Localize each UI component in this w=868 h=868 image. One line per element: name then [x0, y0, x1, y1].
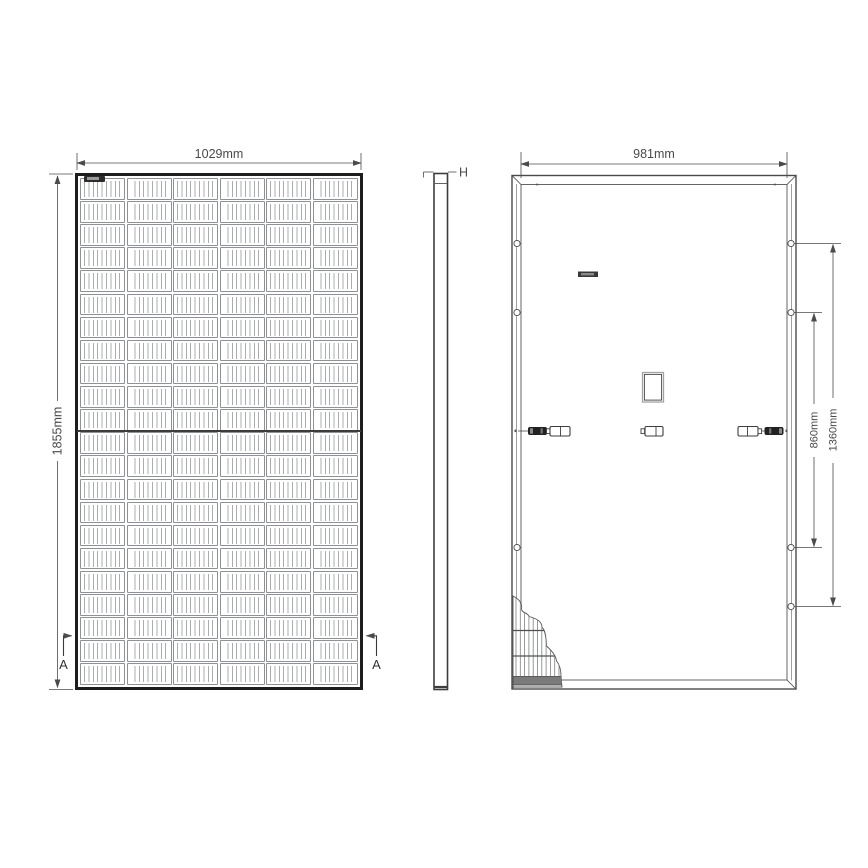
front-width-label: 1029mm — [195, 147, 244, 161]
dimension-back-width: 981mm — [521, 147, 787, 178]
mounting-hole — [514, 544, 520, 550]
mc4-socket-white — [738, 427, 758, 437]
frame-pin-hole — [536, 184, 538, 186]
connector-left — [515, 427, 571, 437]
section-marker-right: A — [367, 636, 382, 672]
mounting-hole — [788, 240, 794, 246]
dimension-front-height: 1855mm — [49, 174, 73, 690]
dimension-front-width: 1029mm — [77, 147, 361, 170]
front-height-label: 1855mm — [51, 407, 65, 456]
mounting-hole — [788, 603, 794, 609]
mounting-hole — [514, 240, 520, 246]
mc4-socket-white — [645, 427, 663, 437]
side-view — [434, 174, 448, 690]
mounting-hole — [788, 309, 794, 315]
section-label-right: A — [372, 657, 381, 672]
section-marker-left: A — [59, 636, 71, 672]
connector-center — [641, 427, 663, 437]
back-width-label: 981mm — [633, 147, 675, 161]
mc4-socket-white — [550, 427, 570, 437]
linework-layer: 1029mm 1855mm A A H — [0, 0, 868, 868]
dimension-hole-span-inner: 860mm — [795, 313, 823, 548]
drawing-canvas: 1029mm 1855mm A A H — [0, 0, 868, 868]
mounting-hole — [788, 544, 794, 550]
hole-span-inner-label: 860mm — [809, 412, 821, 449]
corner-cutaway — [513, 596, 562, 687]
back-label-sticker — [578, 272, 598, 278]
mounting-holes — [514, 240, 794, 609]
hole-span-outer-label: 1360mm — [828, 409, 840, 452]
section-label-left: A — [59, 657, 68, 672]
frame-pin-hole — [774, 184, 776, 186]
junction-box — [643, 373, 664, 403]
connector-right — [738, 427, 788, 437]
mounting-hole — [514, 309, 520, 315]
side-thickness-label: H — [459, 166, 468, 180]
